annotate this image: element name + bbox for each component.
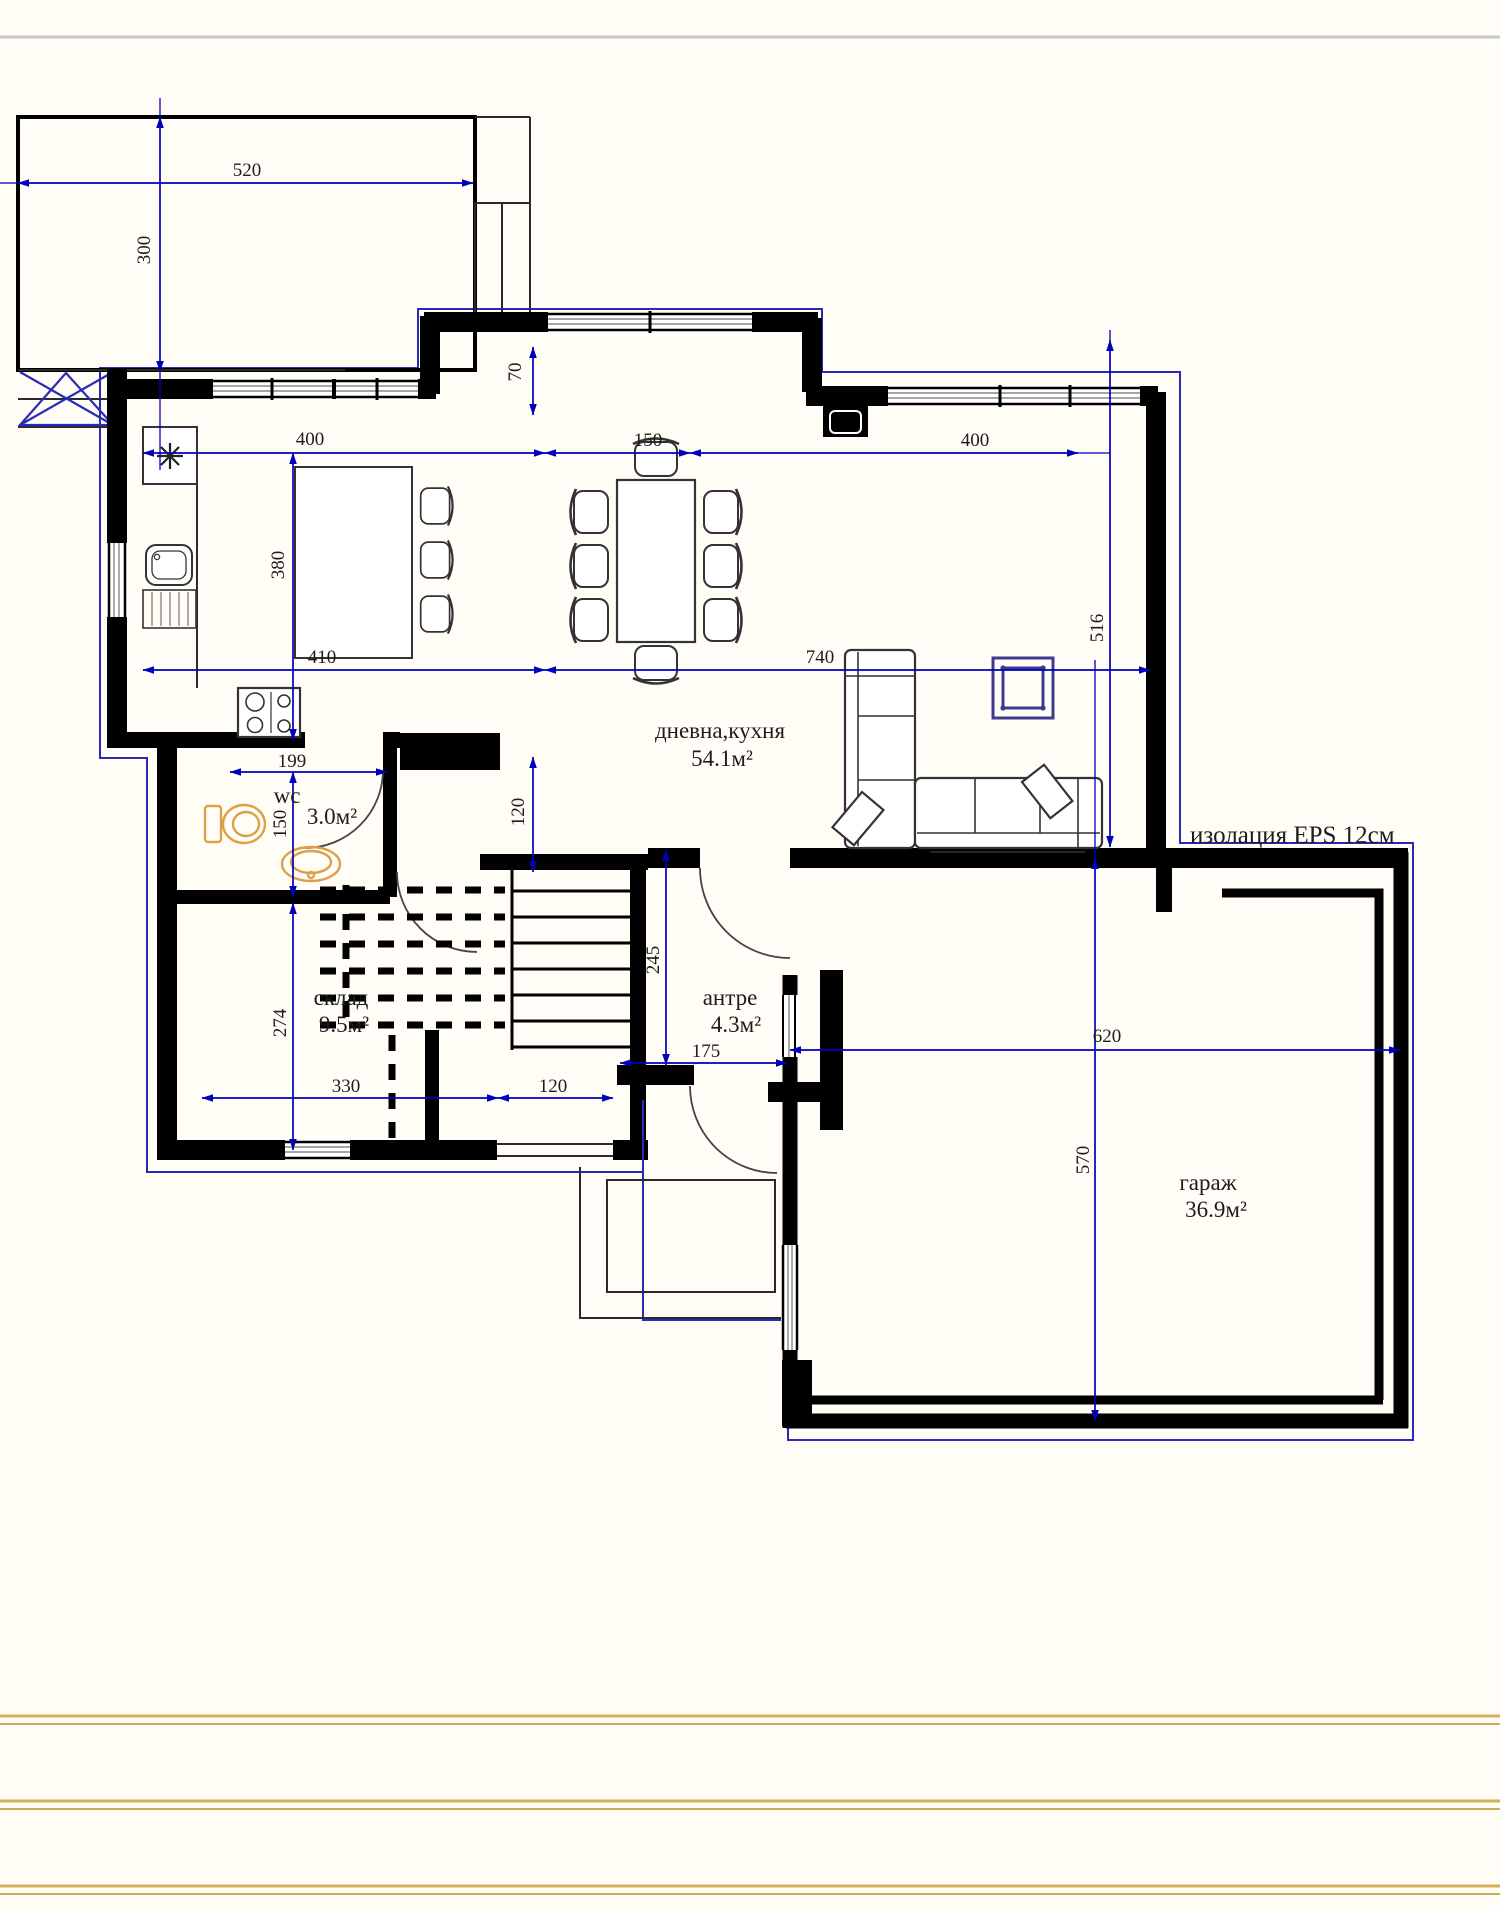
dim-label-stair-opening: 120 bbox=[508, 798, 529, 827]
entry-porch bbox=[580, 1100, 788, 1318]
window-top-upper bbox=[548, 311, 752, 333]
stove-fixture bbox=[238, 688, 300, 737]
dim-label-wc-height: 150 bbox=[270, 810, 291, 839]
dining-table bbox=[571, 439, 742, 684]
dim-label-terrace-width: 520 bbox=[233, 160, 262, 181]
wc-room-area: 3.0м² bbox=[307, 804, 357, 829]
doors bbox=[305, 770, 790, 1173]
hall-door-arc bbox=[700, 868, 790, 958]
hall-room-name: антре bbox=[703, 985, 758, 1010]
drawing-page: 520 300 70 400 150 400 380 410 740 516 1… bbox=[0, 0, 1500, 1910]
footer-rule-lines bbox=[0, 1716, 1500, 1894]
dim-label-living-width: 740 bbox=[806, 647, 835, 668]
toilet-fixture bbox=[205, 805, 265, 843]
living-room-area: 54.1м² bbox=[691, 746, 753, 771]
dim-label-wall-step: 70 bbox=[505, 363, 526, 382]
dim-label-living-height: 516 bbox=[1087, 614, 1108, 643]
dim-label-terrace-height: 300 bbox=[134, 236, 155, 265]
storage-room-name: склад bbox=[314, 985, 369, 1010]
dim-label-kitchen-width: 410 bbox=[308, 647, 337, 668]
dim-label-top-left: 400 bbox=[296, 429, 325, 450]
dim-label-storage-height: 274 bbox=[270, 1008, 291, 1037]
storage-room-area: 9.5м² bbox=[319, 1012, 369, 1037]
sink-fixture bbox=[143, 545, 196, 628]
garage-room-area: 36.9м² bbox=[1185, 1197, 1247, 1222]
dim-label-garage-height: 570 bbox=[1073, 1146, 1094, 1175]
fireplace bbox=[823, 406, 868, 437]
fridge-fixture bbox=[143, 427, 197, 484]
dim-label-bottom-door: 120 bbox=[539, 1076, 568, 1097]
dim-label-garage-width: 620 bbox=[1093, 1026, 1122, 1047]
living-room-name: дневна,кухня bbox=[655, 718, 786, 743]
window-vestibule bbox=[781, 995, 799, 1057]
dim-label-kitchen-depth: 380 bbox=[268, 551, 289, 580]
stair-door-arc bbox=[397, 872, 477, 952]
dim-label-wc-width: 199 bbox=[278, 751, 307, 772]
dim-label-hall-width: 175 bbox=[692, 1041, 721, 1062]
window-storage bbox=[285, 1140, 350, 1160]
kitchen bbox=[143, 427, 453, 737]
decor-square bbox=[993, 658, 1053, 718]
garage-room-name: гараж bbox=[1179, 1170, 1236, 1195]
insulation-note: изолация EPS 12см bbox=[1190, 822, 1395, 849]
window-top-right bbox=[888, 385, 1140, 407]
door-threshold bbox=[497, 1144, 613, 1156]
window-garage bbox=[781, 1245, 799, 1350]
hall-room-area: 4.3м² bbox=[711, 1012, 761, 1037]
kitchen-bar bbox=[295, 467, 453, 658]
dim-label-top-right: 400 bbox=[961, 430, 990, 451]
dim-label-top-mid: 150 bbox=[634, 430, 663, 451]
sofa bbox=[832, 650, 1102, 852]
window-west bbox=[107, 543, 127, 617]
dim-label-storage-width: 330 bbox=[332, 1076, 361, 1097]
garage-walls bbox=[768, 852, 1408, 1428]
front-door-arc bbox=[690, 1086, 777, 1173]
wc-room-name: wc bbox=[274, 783, 301, 808]
window-top-a bbox=[213, 378, 332, 400]
window-top-b bbox=[336, 378, 418, 400]
dim-label-hall-depth: 245 bbox=[643, 946, 664, 975]
floor-plan-canvas: 520 300 70 400 150 400 380 410 740 516 1… bbox=[0, 0, 1500, 1910]
basin-fixture bbox=[282, 847, 340, 881]
